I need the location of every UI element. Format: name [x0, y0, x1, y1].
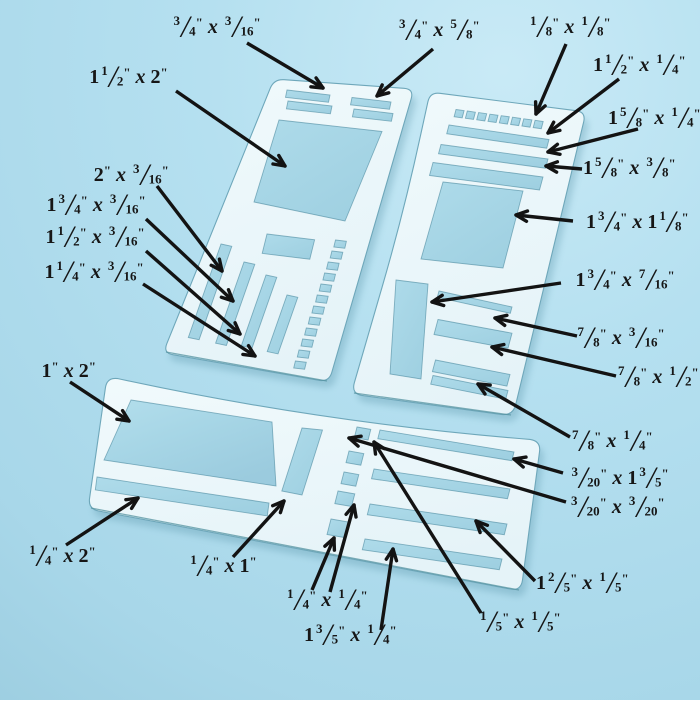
svg-text:1"​ x 2"​: 1"​ x 2"​	[42, 359, 96, 382]
